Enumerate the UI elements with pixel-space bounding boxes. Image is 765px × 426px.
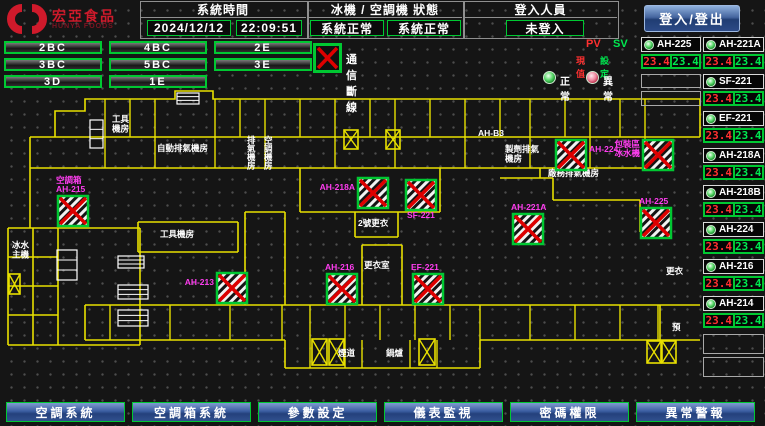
- chiller-status-value: 系統正常: [310, 20, 384, 36]
- unit-box-sf-221[interactable]: SF-221: [703, 74, 764, 89]
- unit-name-label: AH-225: [657, 39, 691, 50]
- normal-label: 正常: [560, 73, 570, 103]
- pv-sub-label: 現值: [576, 54, 585, 80]
- unit-name-label: SF-221: [719, 76, 752, 87]
- unit-box-ah-214[interactable]: AH-214: [703, 296, 764, 311]
- empty-slot: [703, 357, 764, 377]
- empty-slot: [641, 91, 701, 106]
- room-label: 製劑排氣機房: [504, 144, 540, 164]
- equipment-icon: [57, 250, 77, 280]
- unit-box-ah-218b[interactable]: AH-218B: [703, 185, 764, 200]
- unit-name-label: AH-218B: [719, 187, 761, 198]
- room-label: 更衣室: [364, 260, 390, 270]
- unit-status-lamp: [706, 114, 716, 124]
- ahu-device-label: EF-221: [411, 262, 439, 272]
- unit-box-ah-225[interactable]: AH-225: [641, 37, 701, 52]
- system-date-value: 2024/12/12: [147, 20, 231, 36]
- pv-value: 23.4: [704, 203, 734, 216]
- equipment-icon: [118, 285, 148, 299]
- pv-value: 23.4: [704, 240, 734, 253]
- login-logout-button[interactable]: 登入/登出: [644, 5, 740, 32]
- sv-value: 23.4: [734, 277, 764, 290]
- sv-value: 23.4: [734, 240, 764, 253]
- room-label: 空調機房: [264, 135, 273, 171]
- ahu-device-icon[interactable]: AH-216: [325, 262, 357, 304]
- unit-name-label: AH-216: [719, 261, 753, 272]
- system-time-label: 系統時間: [140, 1, 306, 18]
- fan-icon: [647, 341, 661, 363]
- floor-button-1e[interactable]: 1E: [109, 75, 207, 88]
- ahu-device-label: 空調箱AH-215: [56, 175, 86, 194]
- empty-slot: [641, 74, 701, 88]
- equipment-icon: [90, 120, 103, 148]
- sv-value: 23.4: [734, 92, 764, 105]
- comm-loss-icon: [313, 43, 342, 73]
- sv-value: 23.4: [734, 55, 764, 68]
- room-label: 自動排氣機房: [157, 143, 208, 153]
- room-label: 鍋爐: [386, 348, 404, 358]
- machine-status-label: 冰機 / 空調機 狀態: [308, 1, 462, 18]
- room-label: AH-B3: [478, 128, 504, 138]
- brand-logo: 宏亞食品 HUNYA FOODS: [6, 2, 146, 36]
- comm-loss-label: 通信斷線: [346, 51, 357, 115]
- nav-button-5[interactable]: 密碼權限: [510, 402, 629, 422]
- unit-status-lamp: [706, 77, 716, 87]
- header-bar: 宏亞食品 HUNYA FOODS 系統時間 2024/12/12 22:09:5…: [0, 0, 765, 38]
- pv-value: 23.4: [704, 55, 734, 68]
- equipment-icon: [177, 93, 199, 104]
- sv-value: 23.4: [734, 129, 764, 142]
- equipment-icon: [118, 310, 148, 326]
- login-label: 登入人員: [464, 1, 617, 18]
- unit-values-ah-216: 23.423.4: [703, 276, 764, 291]
- fan-icon: [344, 130, 358, 149]
- unit-status-lamp: [706, 40, 716, 50]
- unit-values-ah-224: 23.423.4: [703, 239, 764, 254]
- ahu-device-icon[interactable]: EF-221: [411, 262, 443, 304]
- floor-button-3bc[interactable]: 3BC: [4, 58, 102, 71]
- abnormal-lamp-icon: [586, 71, 599, 84]
- fan-icon: [9, 274, 20, 294]
- sv-value: 23.4: [671, 55, 700, 68]
- ahu-device-label: AH-218A: [320, 182, 355, 192]
- ahu-device-label: SF-221: [407, 210, 435, 220]
- room-label: 更衣: [666, 266, 684, 276]
- pv-value: 23.4: [704, 92, 734, 105]
- fan-icon: [419, 339, 435, 365]
- unit-status-lamp: [706, 225, 716, 235]
- floor-button-2e[interactable]: 2E: [214, 41, 312, 54]
- ahu-device-label: AH-225: [639, 196, 669, 206]
- unit-status-lamp: [706, 299, 716, 309]
- ahu-device-icon[interactable]: AH-221A: [511, 202, 546, 244]
- room-label: 煙道: [338, 348, 356, 358]
- sv-value: 23.4: [734, 314, 764, 327]
- fan-icon: [312, 339, 327, 365]
- unit-name-label: EF-221: [719, 113, 752, 124]
- fan-icon: [662, 341, 676, 363]
- brand-name: 宏亞食品: [52, 9, 116, 23]
- unit-values-ef-221: 23.423.4: [703, 128, 764, 143]
- unit-values-ah-218a: 23.423.4: [703, 165, 764, 180]
- brand-name-en: HUNYA FOODS: [52, 23, 116, 30]
- sv-value: 23.4: [734, 166, 764, 179]
- nav-button-1[interactable]: 空調系統: [6, 402, 125, 422]
- room-label: 排氣機房: [247, 135, 256, 171]
- nav-button-4[interactable]: 儀表監視: [384, 402, 503, 422]
- floor-button-3e[interactable]: 3E: [214, 58, 312, 71]
- unit-name-label: AH-218A: [719, 150, 761, 161]
- floor-button-2bc[interactable]: 2BC: [4, 41, 102, 54]
- unit-values-ah-225: 23.423.4: [641, 54, 701, 69]
- ahu-device-icon[interactable]: SF-221: [406, 180, 436, 220]
- unit-values-sf-221: 23.423.4: [703, 91, 764, 106]
- hmi-screen: { "header": { "brand": "宏亞食品", "brand_en…: [0, 0, 765, 426]
- nav-button-2[interactable]: 空調箱系統: [132, 402, 251, 422]
- ahu-device-icon[interactable]: AH-224: [556, 140, 619, 170]
- pv-value: 23.4: [704, 314, 734, 327]
- unit-status-lamp: [706, 188, 716, 198]
- abnormal-label: 異常: [603, 73, 613, 103]
- sv-value: 23.4: [734, 203, 764, 216]
- pv-value: 23.4: [704, 166, 734, 179]
- unit-status-lamp: [644, 40, 654, 50]
- system-clock-value: 22:09:51: [236, 20, 302, 36]
- unit-box-ah-216[interactable]: AH-216: [703, 259, 764, 274]
- unit-status-lamp: [706, 151, 716, 161]
- unit-box-ef-221[interactable]: EF-221: [703, 111, 764, 126]
- room-label: 預: [672, 322, 681, 332]
- room-label: 工具機房: [160, 229, 194, 239]
- ahu-status-value: 系統正常: [387, 20, 461, 36]
- normal-lamp-icon: [543, 71, 556, 84]
- unit-name-label: AH-224: [719, 224, 753, 235]
- floor-button-3d[interactable]: 3D: [4, 75, 102, 88]
- unit-name-label: AH-221A: [719, 39, 761, 50]
- unit-values-ah-221a: 23.423.4: [703, 54, 764, 69]
- brand-logo-icon: [6, 3, 48, 35]
- empty-slot: [703, 334, 764, 354]
- pv-label: PV: [586, 38, 601, 50]
- unit-box-ah-224[interactable]: AH-224: [703, 222, 764, 237]
- unit-box-ah-218a[interactable]: AH-218A: [703, 148, 764, 163]
- nav-button-3[interactable]: 參數設定: [258, 402, 377, 422]
- pv-value: 23.4: [704, 277, 734, 290]
- unit-box-ah-221a[interactable]: AH-221A: [703, 37, 764, 52]
- room-label: 冰水主機: [12, 240, 30, 260]
- unit-values-ah-214: 23.423.4: [703, 313, 764, 328]
- room-label: 工具機房: [112, 114, 130, 134]
- fan-icon: [386, 130, 400, 149]
- pv-value: 23.4: [704, 129, 734, 142]
- room-label: 2號更衣: [358, 218, 389, 228]
- ahu-device-icon[interactable]: AH-213: [185, 273, 247, 303]
- unit-status-lamp: [706, 262, 716, 272]
- unit-name-label: AH-214: [719, 298, 753, 309]
- floor-button-4bc[interactable]: 4BC: [109, 41, 207, 54]
- ahu-device-icon[interactable]: AH-218A: [320, 178, 388, 208]
- unit-values-ah-218b: 23.423.4: [703, 202, 764, 217]
- floor-button-5bc[interactable]: 5BC: [109, 58, 207, 71]
- ahu-device-label: AH-221A: [511, 202, 546, 212]
- sv-label: SV: [613, 38, 628, 50]
- ahu-device-label: AH-216: [325, 262, 355, 272]
- ahu-device-label: 包裝區冰水機: [614, 139, 640, 158]
- ahu-device-icon[interactable]: 空調箱AH-215: [56, 175, 88, 226]
- ahu-device-label: AH-213: [185, 277, 215, 287]
- ahu-device-icon[interactable]: 包裝區冰水機: [614, 139, 673, 170]
- login-status-value: 未登入: [506, 20, 584, 36]
- ahu-device-icon[interactable]: AH-225: [639, 196, 671, 238]
- pv-value: 23.4: [642, 55, 671, 68]
- nav-button-6[interactable]: 異常警報: [636, 402, 755, 422]
